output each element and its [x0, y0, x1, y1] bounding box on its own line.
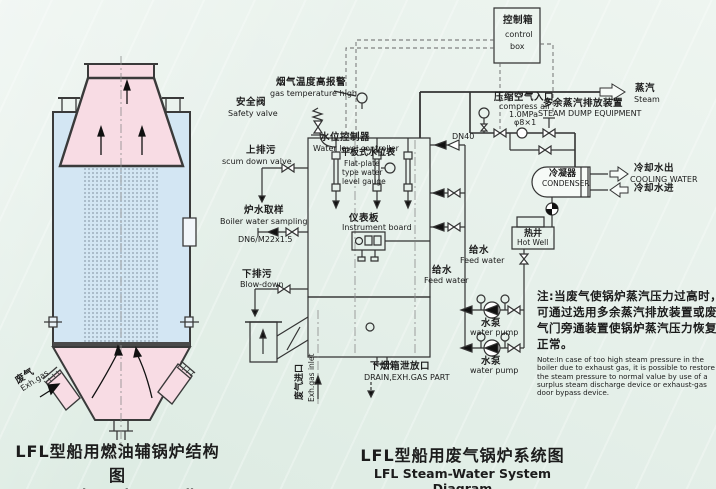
diagram-stage: 控制箱 control box 烟气温度高报警 gas temperature …: [0, 0, 716, 489]
sampling-label-en: Boiler water sampling: [220, 218, 307, 226]
note-en-line5: door bypass device.: [537, 389, 715, 397]
pump1-label-en: water pump: [470, 329, 518, 337]
condenser-label-en: CONDENSER: [542, 180, 590, 188]
pump2-label-en: water pump: [470, 367, 518, 375]
control-box-label-zh: 控制箱: [503, 16, 533, 26]
exh-inlet-label-en: Exh.gas inlet: [308, 354, 316, 402]
note-zh-line1: 注:当废气使锅炉蒸汽压力过高时，: [537, 288, 716, 304]
hotwell-label-en: Hot Well: [517, 239, 548, 247]
note-zh-line4: 正常。: [537, 336, 716, 352]
cooling-in-arrow: [610, 183, 628, 197]
handhole: [366, 323, 374, 331]
gas-temp-label-en: gas temperature high: [270, 90, 357, 98]
feed-header: [430, 140, 465, 348]
cooling-out-label-zh: 冷却水出: [634, 164, 674, 174]
structure-boiler: [40, 56, 199, 452]
feed-water-label1-en: Feed water: [460, 257, 504, 265]
safety-valve-label-zh: 安全阀: [236, 98, 266, 108]
instrument-label-en: Instrument board: [342, 224, 412, 232]
feed-water-label1-zh: 给水: [469, 246, 489, 256]
note-zh-line2: 可通过选用多余蒸汽排放装置或废: [537, 304, 716, 320]
drain-label-en: DRAIN,EXH.GAS PART: [364, 374, 450, 382]
blowdown-line: [252, 285, 308, 316]
drain-label-zh: 下烟箱泄放口: [370, 362, 430, 372]
scum-label-zh: 上排污: [246, 146, 276, 156]
note-english: Note:In case of too high steam pressure …: [537, 356, 715, 397]
diagram-artwork: [0, 0, 716, 489]
exh-inlet-label-zh: 废气进口: [296, 364, 305, 400]
sampling-spec-label: DN6/M22x1.5: [238, 236, 292, 244]
scum-label-en: scum down valve: [222, 158, 292, 166]
instrument-board: [352, 232, 430, 261]
flat-gauge-label-zh: 平板式水位表: [341, 149, 395, 158]
cooling-in-label-zh: 冷却水进: [634, 184, 674, 194]
scum-line: [259, 164, 308, 202]
safety-valve-label-en: Safety valve: [228, 110, 278, 118]
sampling-label-zh: 炉水取样: [244, 206, 284, 216]
right-caption-en: LFL Steam-Water System Diagram: [350, 466, 575, 489]
control-box-label-en1: control: [505, 31, 533, 39]
blowdown-label-zh: 下排污: [242, 270, 272, 280]
flat-gauge-label-en2: type water: [342, 169, 383, 177]
dn40-label: DN40: [452, 133, 474, 141]
feed-water-label2-zh: 给水: [432, 266, 452, 276]
manhole: [183, 218, 196, 246]
steam-label-en: Steam: [634, 96, 660, 104]
steam-dump-label-en: STEAM DUMP EQUIPMENT: [538, 110, 641, 118]
note-chinese: 注:当废气使锅炉蒸汽压力过高时， 可通过选用多余蒸汽排放装置或废 气门旁通装置使…: [537, 288, 716, 352]
system-smoke-box: [308, 297, 430, 357]
right-caption: LFL型船用废气锅炉系统图 LFL Steam-Water System Dia…: [350, 442, 575, 489]
funnel: [60, 64, 183, 166]
left-caption-zh: LFL型船用燃油辅锅炉结构图: [15, 438, 220, 486]
flat-gauge-label-en3: level gauge: [342, 178, 386, 186]
right-caption-zh: LFL型船用废气锅炉系统图: [350, 442, 575, 466]
compress-air-dim: φ8×1: [514, 119, 536, 127]
left-caption: LFL型船用燃油辅锅炉结构图 LFL Marine Exh.gas Boiler…: [15, 438, 220, 489]
gas-temp-label-zh: 烟气温度高报警: [276, 78, 346, 88]
blowdown-label-en: Blow-down: [240, 281, 284, 289]
cooling-out-arrow: [610, 167, 628, 181]
wlc-label-zh: 水位控制器: [320, 133, 370, 143]
flat-gauge-label-en1: Flat-plate: [344, 160, 380, 168]
steam-dump-label-zh: 多余蒸汽排放装置: [543, 99, 623, 109]
steam-label-zh: 蒸汽: [635, 84, 655, 94]
feed-water-label2-en: Feed water: [424, 277, 468, 285]
control-box-label-en2: box: [510, 43, 524, 51]
note-zh-line3: 气门旁通装置使锅炉蒸汽压力恢复: [537, 320, 716, 336]
